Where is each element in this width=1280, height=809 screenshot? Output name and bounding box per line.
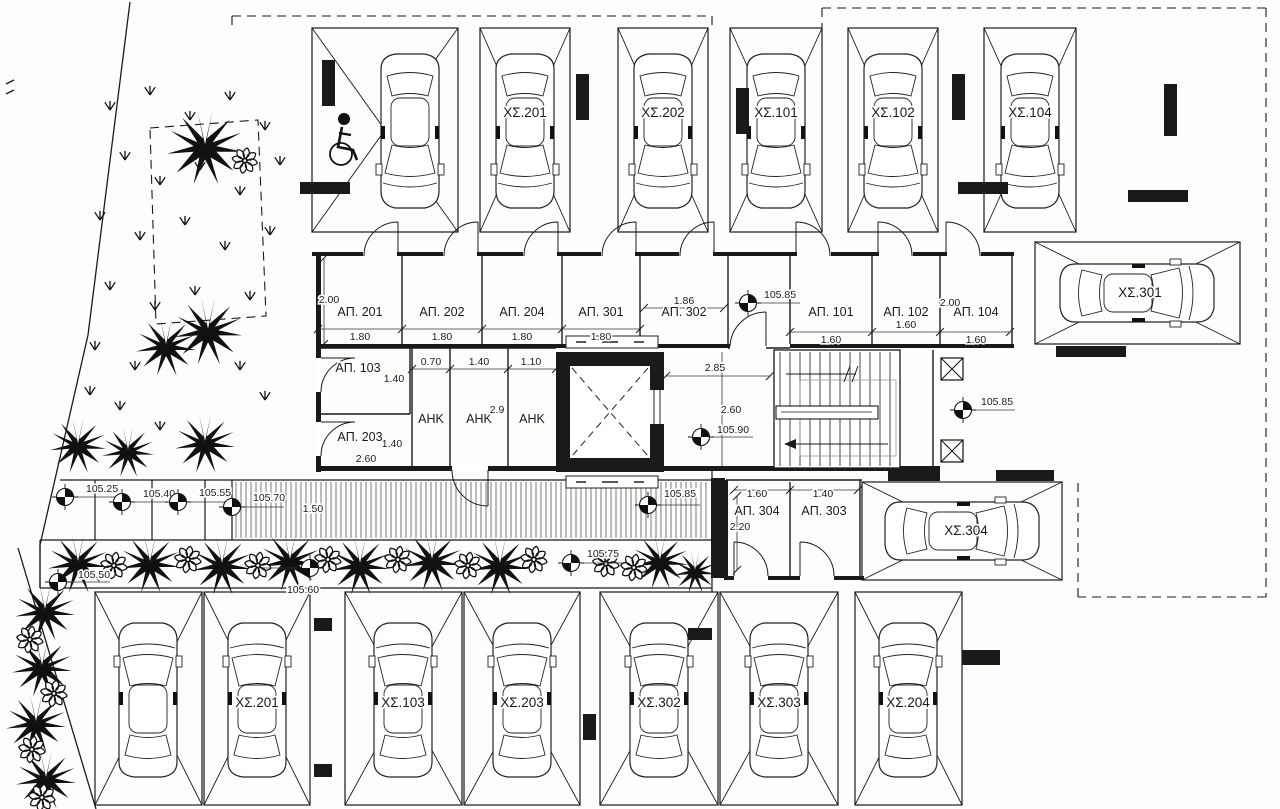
dimension-text: 2.60	[356, 453, 377, 465]
parking-stall: ΧΣ.102	[848, 28, 938, 232]
room-label: ΑΠ. 202	[419, 305, 464, 319]
column	[314, 618, 332, 631]
elevation-value: 105.85	[664, 488, 696, 500]
door-opening	[797, 252, 831, 260]
dimension-text: 1.80	[512, 331, 533, 343]
room-label: ΑΠ. 102	[883, 305, 928, 319]
grass-sprig-icon	[135, 231, 145, 240]
benchmark-icon	[735, 290, 761, 316]
column	[576, 74, 589, 120]
car-icon	[859, 54, 927, 208]
column	[300, 182, 350, 194]
elevator	[556, 336, 666, 488]
column	[583, 714, 596, 740]
elevation-marker: 105.25	[52, 483, 118, 510]
parking-stall	[95, 592, 202, 805]
parking-stall-label: ΧΣ.303	[757, 695, 801, 710]
dimension-text: 1.60	[747, 488, 768, 500]
break-mark	[6, 80, 14, 94]
palm-tree-icon	[167, 110, 243, 184]
door-opening	[730, 343, 766, 349]
parking-stall: ΧΣ.203	[464, 592, 580, 805]
grass-sprig-icon	[145, 86, 155, 95]
parking-stalls: ΧΣ.201ΧΣ.202ΧΣ.101ΧΣ.102ΧΣ.104ΧΣ.201ΧΣ.1…	[95, 28, 1240, 805]
door-opening	[452, 465, 488, 472]
car-icon	[491, 54, 559, 208]
elevation-value: 105.90	[717, 424, 749, 436]
door-swing	[946, 222, 980, 256]
grass-sprig-icon	[105, 281, 115, 290]
column	[952, 74, 965, 120]
grass-sprig-icon	[220, 241, 230, 250]
elevation-marker: 105.85	[635, 488, 700, 518]
door-opening	[800, 574, 834, 580]
door-swing	[800, 542, 834, 576]
door-opening	[947, 252, 981, 260]
door-opening	[679, 252, 713, 260]
elevation-value: 105.55	[199, 487, 231, 499]
grass-sprig-icon	[155, 176, 165, 185]
palm-tree-icon	[174, 298, 242, 364]
elevation-value: 105.70	[253, 492, 285, 504]
shrub-icon	[385, 546, 411, 572]
shrub-icon	[175, 546, 201, 572]
column	[888, 470, 940, 481]
elevation-value: 105.75	[587, 548, 619, 560]
shrub-icon	[29, 784, 55, 809]
grass-sprig-icon	[105, 101, 115, 110]
palm-tree-icon	[673, 550, 717, 593]
room-label: ΑΠ. 303	[801, 504, 846, 518]
column-x-icon	[941, 358, 963, 380]
dimension-text: 1.50	[303, 503, 324, 515]
grass-sprig-icon	[180, 216, 190, 225]
elevation-value: 105.85	[981, 396, 1013, 408]
column	[1128, 190, 1188, 202]
column	[736, 88, 749, 134]
grass-sprig-icon	[235, 361, 245, 370]
palm-tree-icon	[330, 536, 390, 595]
palm-tree-icon	[175, 414, 235, 473]
room-label: ΑΠ. 302	[661, 305, 706, 319]
door-opening	[523, 252, 557, 260]
shrub-icon	[41, 680, 67, 706]
parking-floor-plan: ΧΣ.201ΧΣ.202ΧΣ.101ΧΣ.102ΧΣ.104ΧΣ.201ΧΣ.1…	[0, 0, 1280, 809]
door-swing	[730, 312, 766, 346]
dimension-text: 1.40	[813, 488, 834, 500]
parking-stall-label: ΧΣ.201	[235, 695, 279, 710]
dimension-text: 1.80	[432, 331, 453, 343]
door-swing	[602, 222, 636, 256]
shrub-icon	[245, 552, 271, 578]
parking-stall-label: ΧΣ.104	[1008, 105, 1052, 120]
column	[958, 182, 1008, 194]
grass-sprig-icon	[185, 111, 195, 120]
room-label: ΑΠ. 301	[578, 305, 623, 319]
grass-sprig-icon	[150, 301, 160, 310]
grass-sprig-icon	[275, 156, 285, 165]
door-swing	[364, 222, 398, 256]
parking-stall: ΧΣ.304	[862, 482, 1062, 580]
column	[962, 650, 1000, 665]
dimension-text: 1.10	[521, 356, 542, 368]
elevation-marker: 105.40	[109, 488, 175, 515]
column	[996, 470, 1054, 481]
parking-stall: ΧΣ.104	[984, 28, 1076, 232]
floor-plan-page: ΧΣ.201ΧΣ.202ΧΣ.101ΧΣ.102ΧΣ.104ΧΣ.201ΧΣ.1…	[0, 0, 1280, 809]
grass-sprig-icon	[260, 121, 270, 130]
column	[314, 764, 332, 777]
dimension-text: 2.9	[490, 404, 505, 416]
palm-tree-icon	[192, 536, 252, 595]
dimension-text: 1.60	[896, 319, 917, 331]
column	[688, 628, 712, 640]
door-swing	[878, 222, 912, 256]
car-icon	[114, 623, 182, 777]
door-swing	[444, 222, 478, 256]
door-opening	[879, 252, 913, 260]
door-swing	[524, 222, 558, 256]
elevation-value: 105.60	[287, 584, 319, 596]
car-icon	[629, 54, 697, 208]
door-swing	[452, 470, 488, 506]
door-opening	[443, 252, 477, 260]
room-label: ΑΠ. 201	[337, 305, 382, 319]
grass-sprig-icon	[265, 226, 275, 235]
parking-stall-label: ΧΣ.301	[1118, 285, 1162, 300]
grass-sprig-icon	[115, 401, 125, 410]
dimension-text: 1.60	[821, 334, 842, 346]
dimension-text: 2.20	[730, 521, 751, 533]
parking-stall: ΧΣ.201	[204, 592, 310, 805]
room-label: ΑΠ. 101	[808, 305, 853, 319]
elevation-value: 105.85	[764, 289, 796, 301]
elevation-marker: 105.50	[45, 569, 110, 595]
dimension-text: 2.60	[721, 404, 742, 416]
door-swing	[796, 222, 830, 256]
dimension-text: 0.70	[421, 356, 442, 368]
car-icon	[742, 54, 810, 208]
door-opening	[734, 574, 768, 580]
parking-stall-label: ΧΣ.302	[637, 695, 681, 710]
column	[1056, 346, 1126, 357]
grass-sprig-icon	[235, 186, 245, 195]
benchmark-icon	[688, 424, 714, 450]
room-label: ΑΗΚ	[519, 412, 545, 426]
dimension-text: 2.00	[940, 297, 961, 309]
dimension-text: 2.00	[319, 294, 340, 306]
dimension-text: 1.40	[469, 356, 490, 368]
dimension-text: 2.85	[705, 362, 726, 374]
benchmark-icon	[558, 550, 584, 576]
grass-sprig-icon	[120, 151, 130, 160]
door-swing	[680, 222, 714, 256]
dimension-text: 1.60	[966, 334, 987, 346]
grass-sprig-icon	[155, 421, 165, 430]
wheelchair-icon	[330, 113, 357, 165]
room-label: ΑΠ. 304	[734, 504, 779, 518]
shrub-icon	[455, 552, 481, 578]
dimension-text: 1.80	[591, 331, 612, 343]
parking-stall-label: ΧΣ.101	[754, 105, 798, 120]
door-opening	[363, 252, 397, 260]
parking-stall: ΧΣ.302	[600, 592, 718, 805]
parking-stall: ΧΣ.202	[618, 28, 708, 232]
dimension-text: 1.80	[350, 331, 371, 343]
parking-stall-label: ΧΣ.304	[944, 523, 988, 538]
parking-stall: ΧΣ.201	[480, 28, 570, 232]
parking-stall-label: ΧΣ.203	[500, 695, 544, 710]
dimension-text: 1.86	[674, 295, 695, 307]
stairs	[774, 350, 963, 468]
column-x-icon	[941, 440, 963, 462]
grass-sprig-icon	[130, 361, 140, 370]
grass-sprig-icon	[85, 386, 95, 395]
room-label: ΑΠ. 204	[499, 305, 544, 319]
parking-stall: ΧΣ.204	[855, 592, 962, 805]
palm-tree-icon	[120, 534, 180, 593]
door-opening	[601, 252, 635, 260]
parking-stall-label: ΧΣ.201	[503, 105, 547, 120]
grass-sprig-icon	[225, 91, 235, 100]
palm-tree-icon	[136, 317, 196, 376]
site-boundary	[6, 2, 130, 809]
palm-tree-icon	[102, 426, 154, 477]
benchmark-icon	[52, 484, 78, 510]
grass-sprig-icon	[90, 341, 100, 350]
column	[322, 60, 335, 106]
grass-sprig-icon	[245, 291, 255, 300]
elevation-marker: 105.85	[950, 396, 1015, 423]
dimension-text: 1.40	[384, 373, 405, 385]
benchmark-icon	[635, 492, 661, 518]
room-label: ΑΠ. 103	[335, 361, 380, 375]
parking-stall: ΧΣ.301	[1035, 242, 1240, 344]
parking-stall-label: ΧΣ.103	[381, 695, 425, 710]
grass-sprig-icon	[190, 286, 200, 295]
parking-stall: ΧΣ.103	[345, 592, 462, 805]
benchmark-icon	[950, 397, 976, 423]
car-icon	[376, 54, 444, 208]
parking-stall-label: ΧΣ.202	[641, 105, 685, 120]
elevation-marker: 105.90	[688, 424, 753, 450]
room-label: ΑΗΚ	[466, 412, 492, 426]
grass-sprig-icon	[260, 391, 270, 400]
column	[1164, 84, 1177, 136]
door-swing	[734, 542, 768, 576]
parking-stall-label: ΧΣ.102	[871, 105, 915, 120]
elevation-value: 105.50	[78, 569, 110, 581]
parking-stall-label: ΧΣ.204	[886, 695, 930, 710]
room-label: ΑΠ. 203	[337, 430, 382, 444]
room-label: ΑΗΚ	[418, 412, 444, 426]
parking-stall	[312, 28, 458, 232]
parking-stall: ΧΣ.303	[720, 592, 838, 805]
elevation-value: 105.25	[86, 483, 118, 495]
dimension-text: 1.40	[382, 438, 403, 450]
